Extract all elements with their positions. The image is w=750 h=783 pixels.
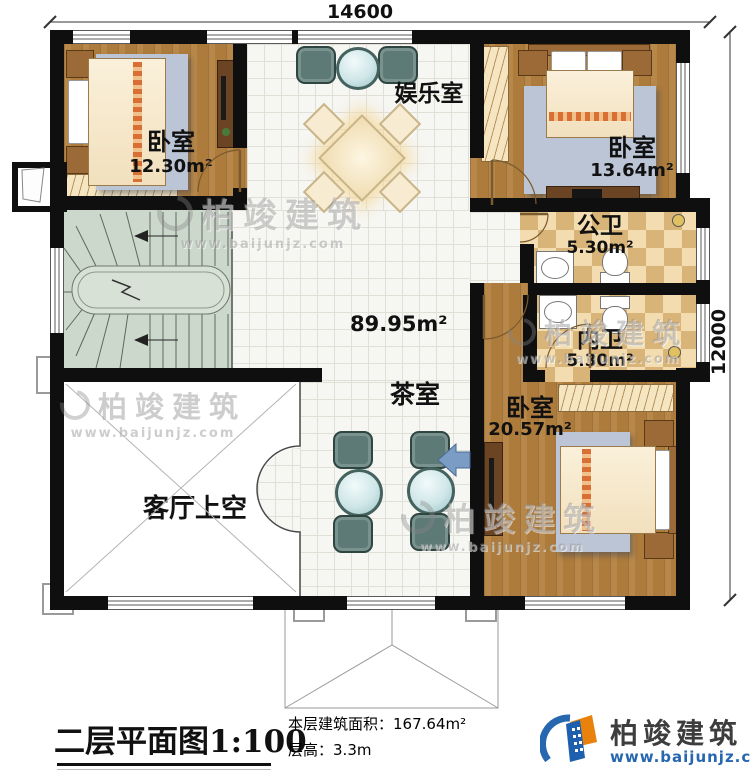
- wall-public-bath-left: [520, 244, 534, 283]
- entertainment-label: 娱乐室: [384, 82, 474, 106]
- bedroom2-closet: [481, 46, 509, 162]
- public-bath-sink: [541, 257, 569, 279]
- bedroom2-area: 13.64m²: [586, 162, 678, 181]
- stairwell-floor: [64, 210, 232, 370]
- floor-plan-canvas: 14600 12000: [0, 0, 750, 783]
- wall-right-lower: [676, 370, 690, 610]
- bedroom2-label: 卧室: [598, 136, 666, 161]
- entertainment-chair-right: [378, 46, 418, 84]
- porch-roof-outline: [285, 610, 498, 708]
- void-label: 客厅上空: [128, 496, 262, 523]
- window-tea-room-bottom: [347, 596, 435, 610]
- wall-private-bath-left: [523, 295, 537, 370]
- tea-chair-1-top: [333, 431, 373, 469]
- window-hall-top-2: [298, 30, 412, 44]
- wall-bedroom2-bottom: [470, 198, 710, 212]
- wall-bedroom1-corner: [233, 188, 247, 196]
- window-bedroom3-bottom: [525, 596, 625, 610]
- floor-area-label: 本层建筑面积：: [288, 715, 393, 733]
- brand-site: www.baijunjz.com: [610, 748, 750, 766]
- private-bath-light: [668, 346, 681, 359]
- plan-title-underline: [57, 763, 271, 766]
- window-bedroom1-top: [73, 30, 130, 44]
- floor-height-line: 层高：3.3m: [288, 739, 371, 760]
- plan-title-underline-2: [57, 769, 271, 770]
- window-void-bottom: [108, 596, 253, 610]
- bedroom3-label: 卧室: [496, 396, 564, 421]
- wall-bath-divider-a: [470, 283, 484, 295]
- floor-height-label: 层高：: [288, 741, 333, 759]
- wall-stair-bottom: [50, 368, 322, 382]
- wall-bath-divider-b: [528, 283, 710, 295]
- dimension-width-label: 14600: [320, 3, 400, 23]
- floor-height-value: 3.3m: [333, 741, 371, 759]
- bedroom1-tv: [221, 76, 226, 120]
- public-bath-area: 5.30m²: [566, 240, 634, 258]
- wall-private-bath-bottom-a: [523, 370, 545, 382]
- entertainment-chair-left: [296, 46, 336, 84]
- bedroom3-nightstand-bottom: [644, 532, 674, 559]
- window-hall-top-1: [207, 30, 292, 44]
- bedroom3-nightstand-top: [644, 420, 674, 447]
- hall-floor-bath-corridor: [470, 212, 520, 283]
- tea-table-2: [407, 467, 455, 515]
- plan-title-text: 二层平面图: [54, 724, 209, 760]
- bedroom3-tv: [489, 458, 494, 510]
- window-public-bath-right: [696, 228, 710, 280]
- hall-area-label: 89.95m²: [350, 313, 434, 335]
- tea-table-1: [335, 469, 383, 517]
- bedroom1-label: 卧室: [111, 130, 231, 155]
- entertainment-round-table: [336, 47, 380, 90]
- public-bath-label: 公卫: [566, 214, 634, 238]
- window-bedroom2-right: [676, 63, 690, 173]
- tea-chair-2-bottom: [410, 513, 450, 551]
- private-bath-label: 内卫: [566, 328, 634, 352]
- bedroom3-bed: [560, 446, 656, 534]
- wall-bedroom1-right: [233, 44, 247, 148]
- porch-pier-left: [293, 608, 325, 622]
- bedroom3-wardrobe: [558, 384, 674, 412]
- plan-title: 二层平面图1:100: [54, 716, 307, 761]
- brand-logo-icon: [540, 708, 604, 770]
- bedroom3-bed-blanket-stripe: [582, 449, 591, 532]
- porch-pier-right: [465, 608, 497, 622]
- wall-bedroom3-left: [470, 295, 484, 596]
- bedroom2-bed-blanket-stripe: [549, 112, 632, 121]
- wall-bath-stub-bottom: [676, 368, 710, 382]
- dimension-height-label: 12000: [710, 305, 730, 379]
- private-bath-area: 5.30m²: [566, 353, 634, 371]
- bedroom1-area: 12.30m²: [111, 158, 231, 177]
- public-bath-light: [672, 214, 685, 227]
- wall-bedroom1-bottom: [50, 196, 247, 210]
- wall-private-bath-bottom-b: [590, 370, 676, 382]
- brand-name: 柏竣建筑: [610, 712, 742, 752]
- bedroom2-bed: [546, 70, 634, 138]
- hall-floor-mid: [232, 210, 470, 382]
- tea-room-label: 茶室: [380, 382, 450, 408]
- floor-area-line: 本层建筑面积：167.64m²: [288, 713, 466, 734]
- private-bath-sink: [544, 301, 572, 323]
- tea-chair-2-top: [410, 431, 450, 469]
- tea-chair-1-bottom: [333, 515, 373, 553]
- bedroom2-nightstand-left: [518, 50, 548, 76]
- floor-area-value: 167.64m²: [393, 715, 466, 733]
- bedroom3-area: 20.57m²: [484, 421, 576, 440]
- window-stair-left: [50, 248, 64, 333]
- bedroom3-entry-floor: [484, 283, 528, 382]
